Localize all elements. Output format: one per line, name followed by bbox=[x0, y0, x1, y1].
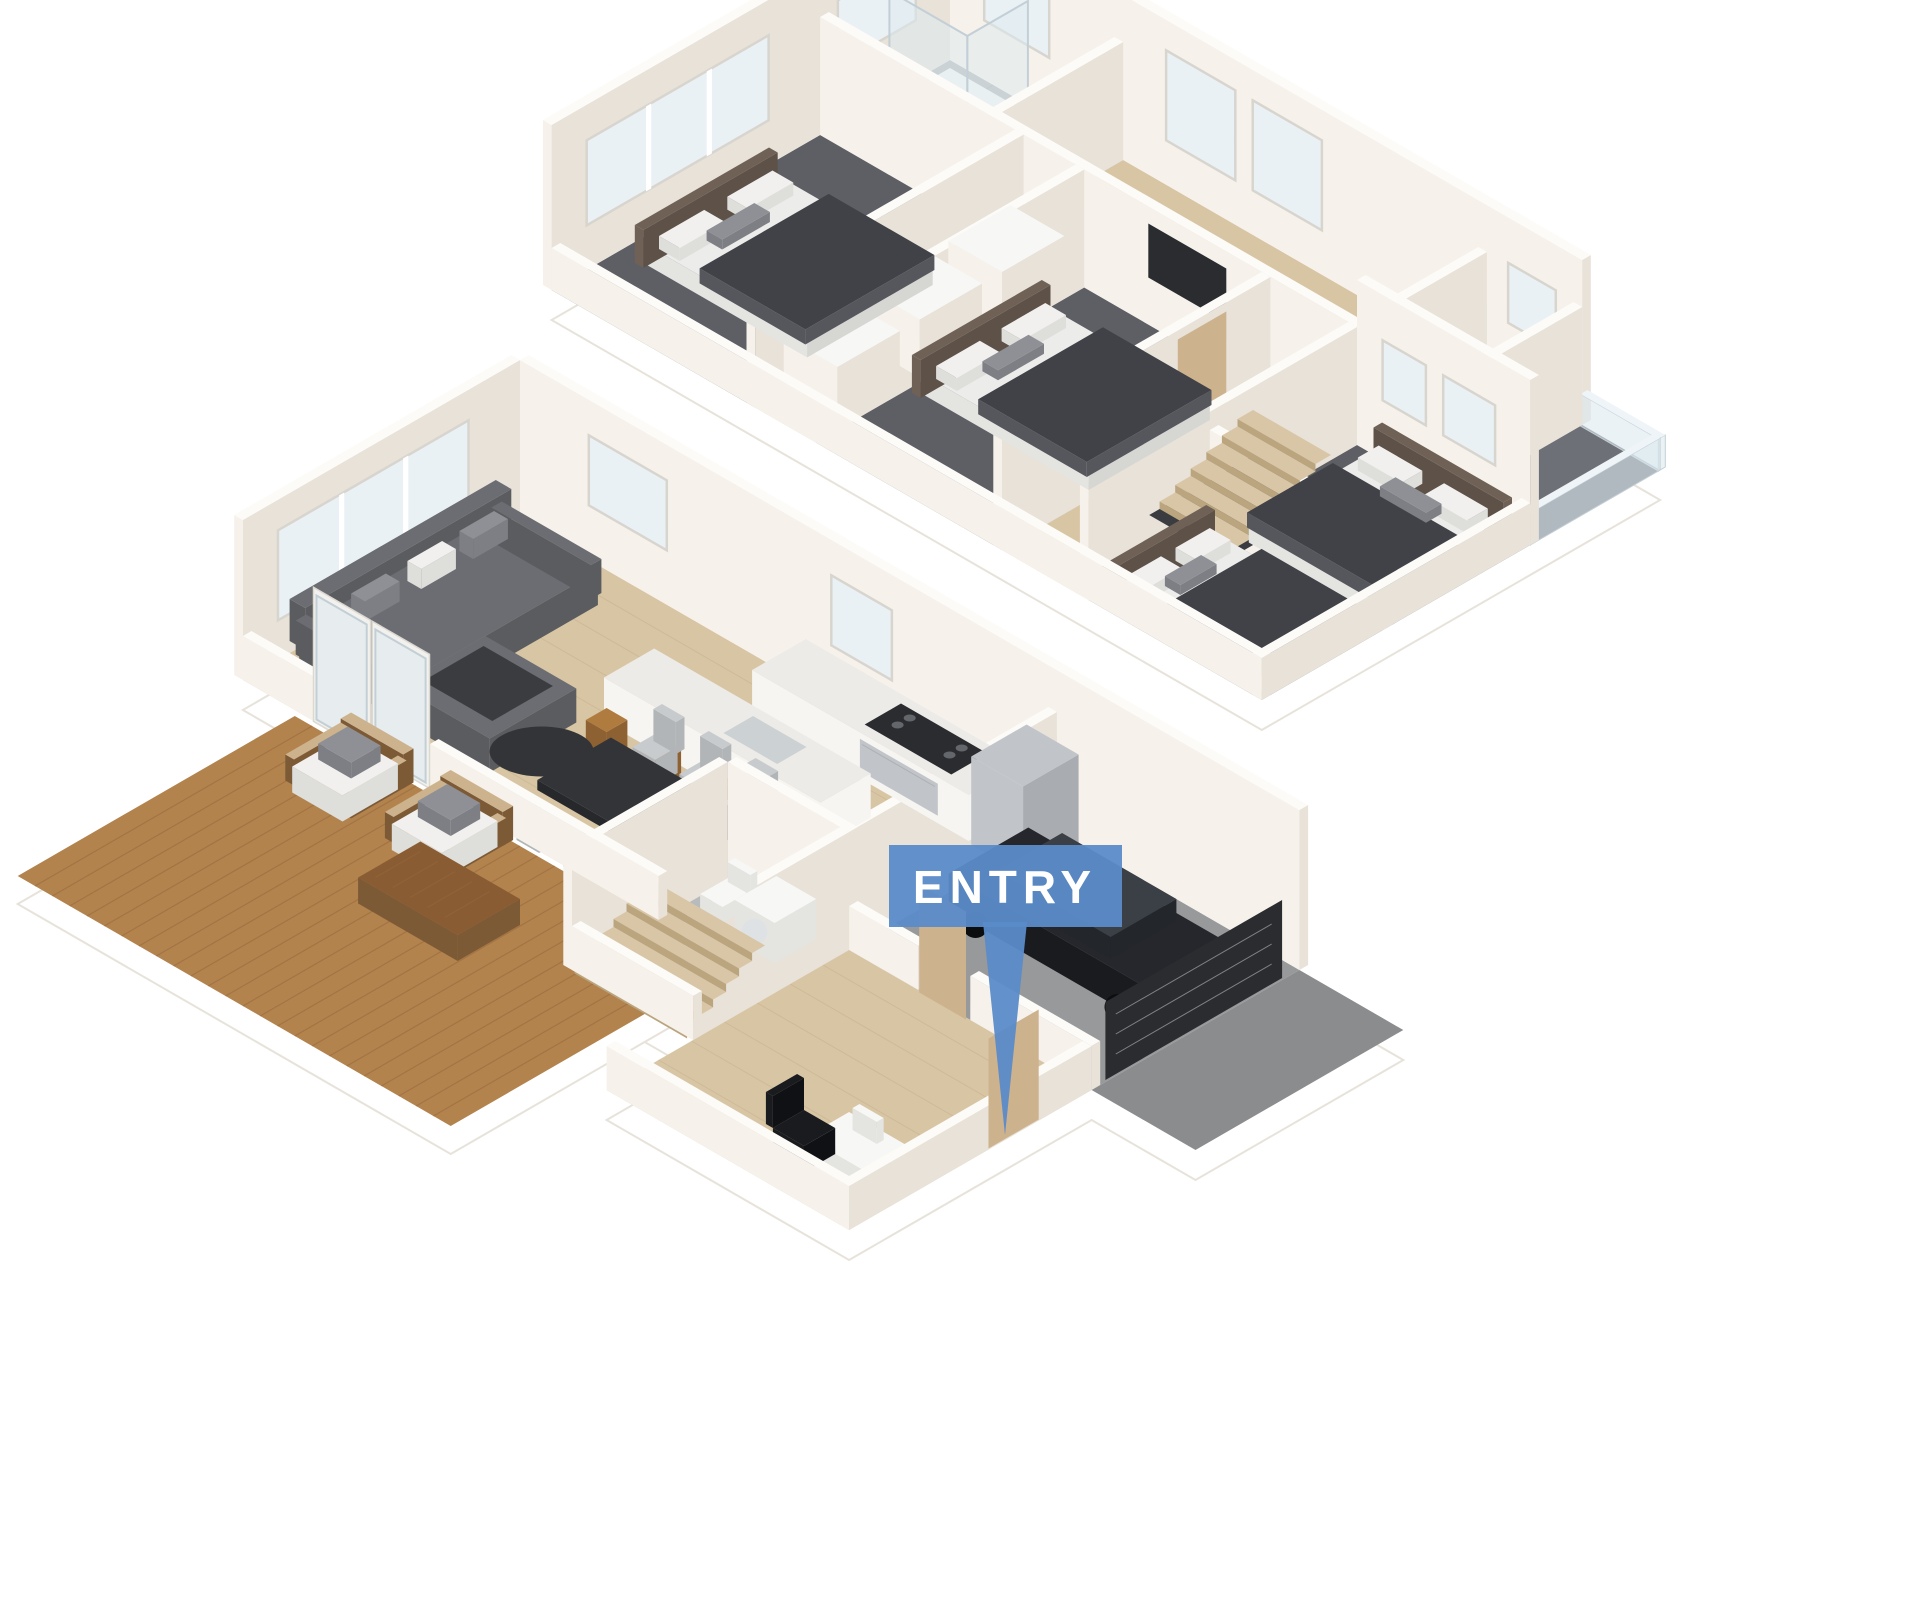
bed-1-headboard-front bbox=[635, 225, 644, 268]
entry-callout-label: ENTRY bbox=[913, 861, 1097, 913]
office-chair-back-front bbox=[766, 1092, 773, 1128]
lower-exterior-wall-nw-front bbox=[234, 515, 243, 680]
bedroom-1-window-mullion bbox=[707, 69, 712, 157]
burner bbox=[956, 745, 968, 752]
upper-cut-wall-se-front bbox=[1253, 653, 1262, 700]
bedroom-1-window-mullion bbox=[646, 104, 651, 192]
floorplan-3d-render: ENTRY bbox=[0, 0, 1920, 1613]
page-canvas: ENTRY bbox=[0, 0, 1920, 1613]
burner bbox=[892, 722, 904, 729]
upper-exterior-wall-nw-front bbox=[543, 120, 552, 290]
lower-cut-wall-se-front bbox=[840, 1181, 849, 1230]
lower-cut-wall-s-side bbox=[693, 991, 702, 1040]
lower-exterior-wall-ne-side bbox=[1299, 805, 1308, 970]
burner bbox=[944, 752, 956, 759]
lower-cut-wall-sw-side bbox=[659, 871, 668, 920]
burner bbox=[904, 715, 916, 722]
floorplan-scene bbox=[18, 0, 1666, 1260]
bed-2-headboard-front bbox=[912, 355, 921, 398]
master-exterior-wall-side bbox=[1530, 375, 1539, 545]
sofa-armrest-side bbox=[591, 559, 601, 599]
garage-foyer-wall-side bbox=[1092, 1041, 1101, 1090]
desk-monitor-side bbox=[877, 1118, 884, 1144]
dining-chair-back-side bbox=[676, 717, 685, 754]
